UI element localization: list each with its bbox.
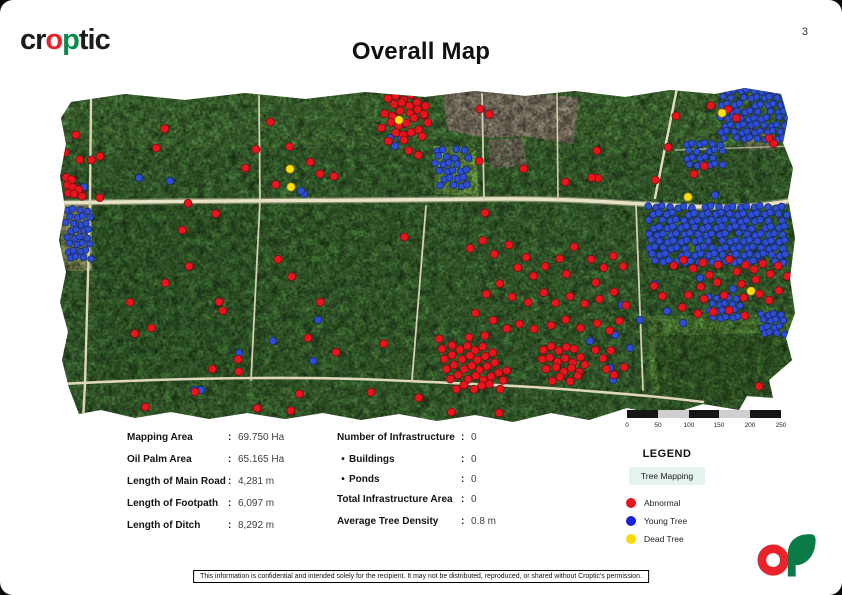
stat-infrastructure-count: Number of Infrastructure:0 (337, 432, 496, 454)
map-terrain (55, 88, 795, 424)
legend-items: Abnormal Young Tree Dead Tree (612, 494, 722, 548)
scale-tick: 200 (745, 422, 756, 429)
page-number: 3 (802, 26, 808, 38)
legend-item-young-tree: Young Tree (626, 512, 722, 530)
plantation-orthomosaic-map (55, 88, 795, 424)
stat-main-road: Length of Main Road:4,281 m (127, 476, 284, 498)
legend-group-tree-mapping: Tree Mapping (629, 467, 705, 485)
scale-bar-segments (627, 410, 781, 418)
stat-ditch: Length of Ditch:8,292 m (127, 520, 284, 542)
map-svg (55, 88, 795, 424)
confidentiality-disclaimer: This information is confidential and int… (193, 570, 649, 583)
stat-tree-density: Average Tree Density:0.8 m (337, 516, 496, 538)
stat-buildings: •Buildings:0 (337, 454, 496, 474)
area-statistics: Mapping Area:69.750 Ha Oil Palm Area:65.… (127, 432, 284, 542)
bullet: • (337, 454, 349, 465)
scale-tick: 100 (684, 422, 695, 429)
scale-tick: 0 (625, 422, 629, 429)
stat-ponds: •Ponds:0 (337, 474, 496, 494)
infrastructure-statistics: Number of Infrastructure:0 •Buildings:0 … (337, 432, 496, 538)
map-scale-bar: 0 50 100 150 200 250 (627, 410, 781, 434)
abnormal-dot-icon (626, 498, 636, 508)
young-tree-dot-icon (626, 516, 636, 526)
legend-item-dead-tree: Dead Tree (626, 530, 722, 548)
bullet: • (337, 474, 349, 485)
map-legend: LEGEND Tree Mapping Abnormal Young Tree … (612, 448, 722, 548)
croptic-brand-icon (754, 528, 820, 580)
legend-item-abnormal: Abnormal (626, 494, 722, 512)
stat-infrastructure-area: Total Infrastructure Area:0 (337, 494, 496, 516)
stat-mapping-area: Mapping Area:69.750 Ha (127, 432, 284, 454)
page-title: Overall Map (0, 38, 842, 66)
scale-tick: 50 (654, 422, 661, 429)
scale-tick: 150 (714, 422, 725, 429)
stat-footpath: Length of Footpath:6,097 m (127, 498, 284, 520)
scale-tick: 250 (776, 422, 787, 429)
stat-oil-palm-area: Oil Palm Area:65.165 Ha (127, 454, 284, 476)
dead-tree-dot-icon (626, 534, 636, 544)
legend-title: LEGEND (612, 448, 722, 460)
report-page: croptic 3 Overall Map (0, 0, 842, 595)
